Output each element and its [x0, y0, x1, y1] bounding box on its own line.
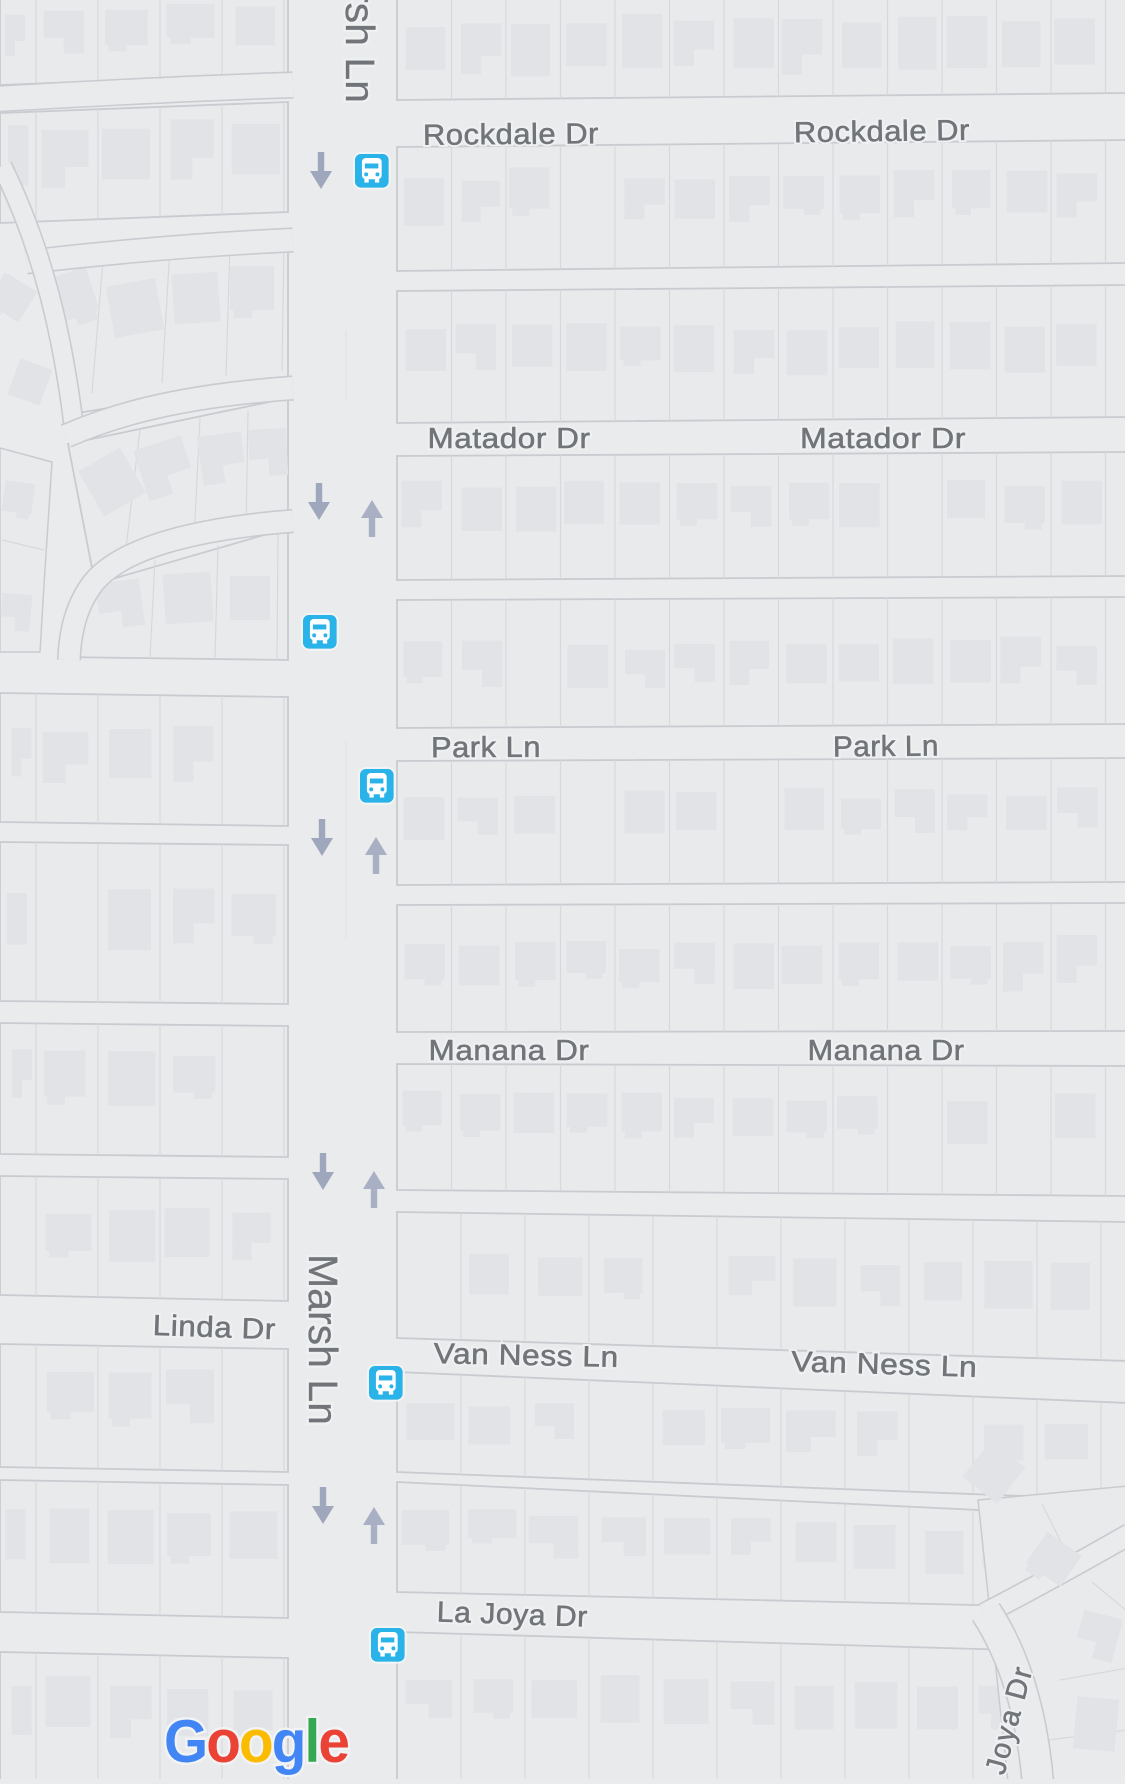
svg-text:Google: Google	[164, 1708, 349, 1775]
svg-text:Marsh Ln: Marsh Ln	[300, 1254, 346, 1425]
svg-text:Manana Dr: Manana Dr	[808, 1035, 965, 1067]
svg-text:Van Ness Ln: Van Ness Ln	[433, 1338, 619, 1374]
svg-text:Linda Dr: Linda Dr	[152, 1310, 276, 1346]
svg-text:Marsh Ln: Marsh Ln	[337, 0, 383, 103]
svg-text:Rockdale Dr: Rockdale Dr	[794, 115, 970, 149]
svg-text:Matador Dr: Matador Dr	[428, 423, 591, 455]
svg-text:Park Ln: Park Ln	[431, 732, 541, 764]
svg-text:Matador Dr: Matador Dr	[800, 423, 966, 455]
svg-text:La Joya Dr: La Joya Dr	[436, 1596, 588, 1633]
svg-text:Van Ness Ln: Van Ness Ln	[791, 1346, 978, 1384]
svg-text:Rockdale Dr: Rockdale Dr	[423, 118, 599, 152]
svg-text:Manana Dr: Manana Dr	[429, 1035, 590, 1067]
svg-text:Park Ln: Park Ln	[833, 731, 939, 764]
